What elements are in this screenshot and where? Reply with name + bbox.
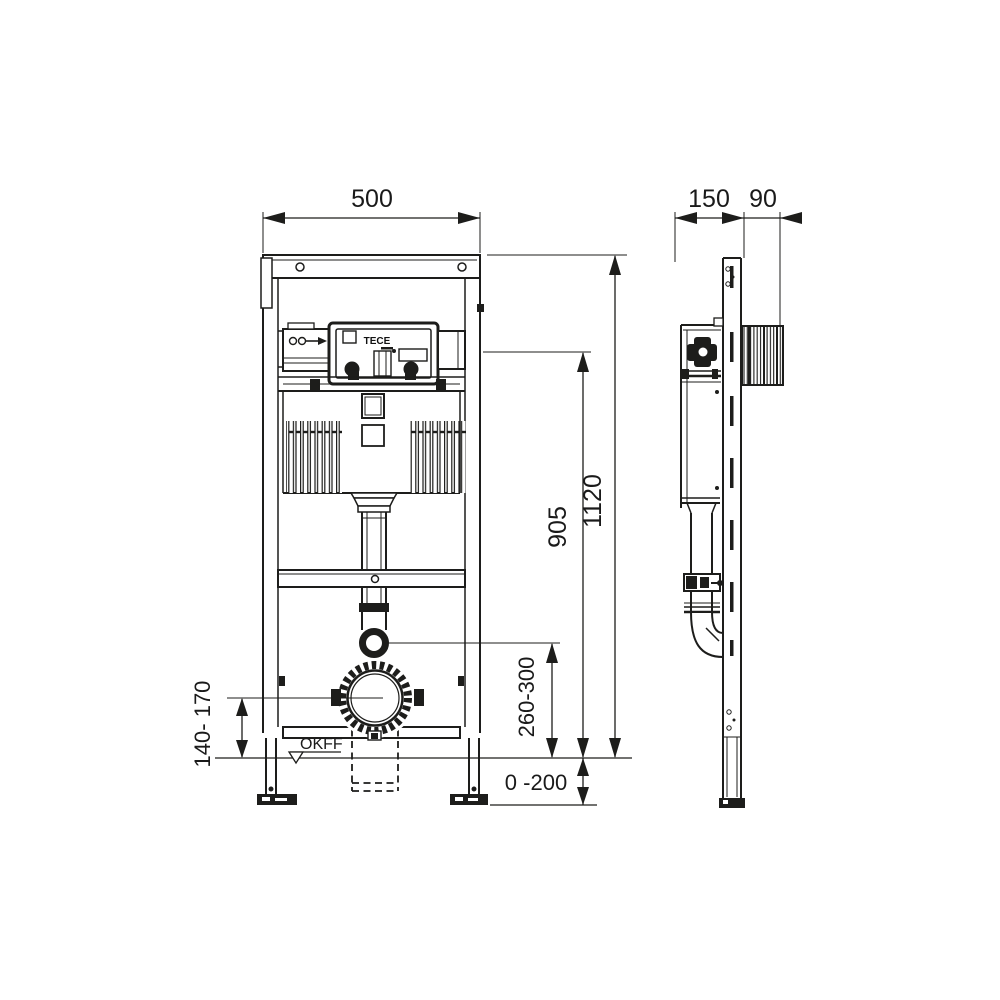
insulation-ribs-right <box>410 421 466 493</box>
service-opening: TECE <box>329 323 438 384</box>
dim-upper-height-label: 905 <box>544 506 572 548</box>
protection-tube <box>742 326 783 385</box>
dim-front-width-label: 500 <box>351 185 393 213</box>
water-supply-valve <box>283 323 330 371</box>
wall-bracket <box>261 258 272 308</box>
middle-crossbar <box>278 570 465 587</box>
installation-frame-diagram: TECE <box>0 0 1000 1000</box>
insulation-ribs-left <box>286 421 342 493</box>
lower-opening <box>362 425 384 446</box>
dim-outlet-height-label: 260-300 <box>514 657 539 738</box>
dim-side-protrusion-label: 90 <box>749 185 777 213</box>
canvas-background <box>0 0 1000 1000</box>
dim-drain-height-label: 140- 170 <box>190 681 215 768</box>
dim-side-depth-label: 150 <box>688 185 730 213</box>
right-connection-box <box>438 331 465 369</box>
technical-drawing: TECE <box>0 0 1000 1000</box>
side-cistern <box>681 318 723 513</box>
pipe-clamp <box>359 603 389 612</box>
dim-floor-adjust-label: 0 -200 <box>505 770 567 795</box>
brand-logo: TECE <box>364 336 391 347</box>
dim-total-height-label: 1120 <box>579 474 607 528</box>
rail-foot <box>719 798 745 808</box>
floor-level-label: OKFF <box>300 736 343 753</box>
